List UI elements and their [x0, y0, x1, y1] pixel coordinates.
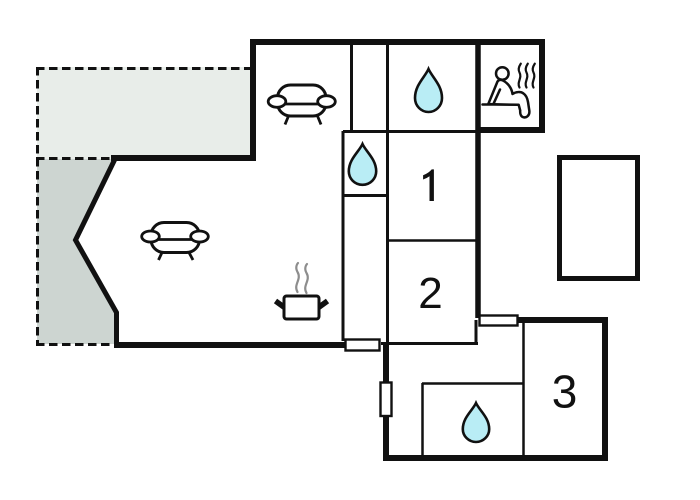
svg-text:3: 3 — [552, 366, 578, 418]
svg-text:2: 2 — [418, 269, 442, 318]
